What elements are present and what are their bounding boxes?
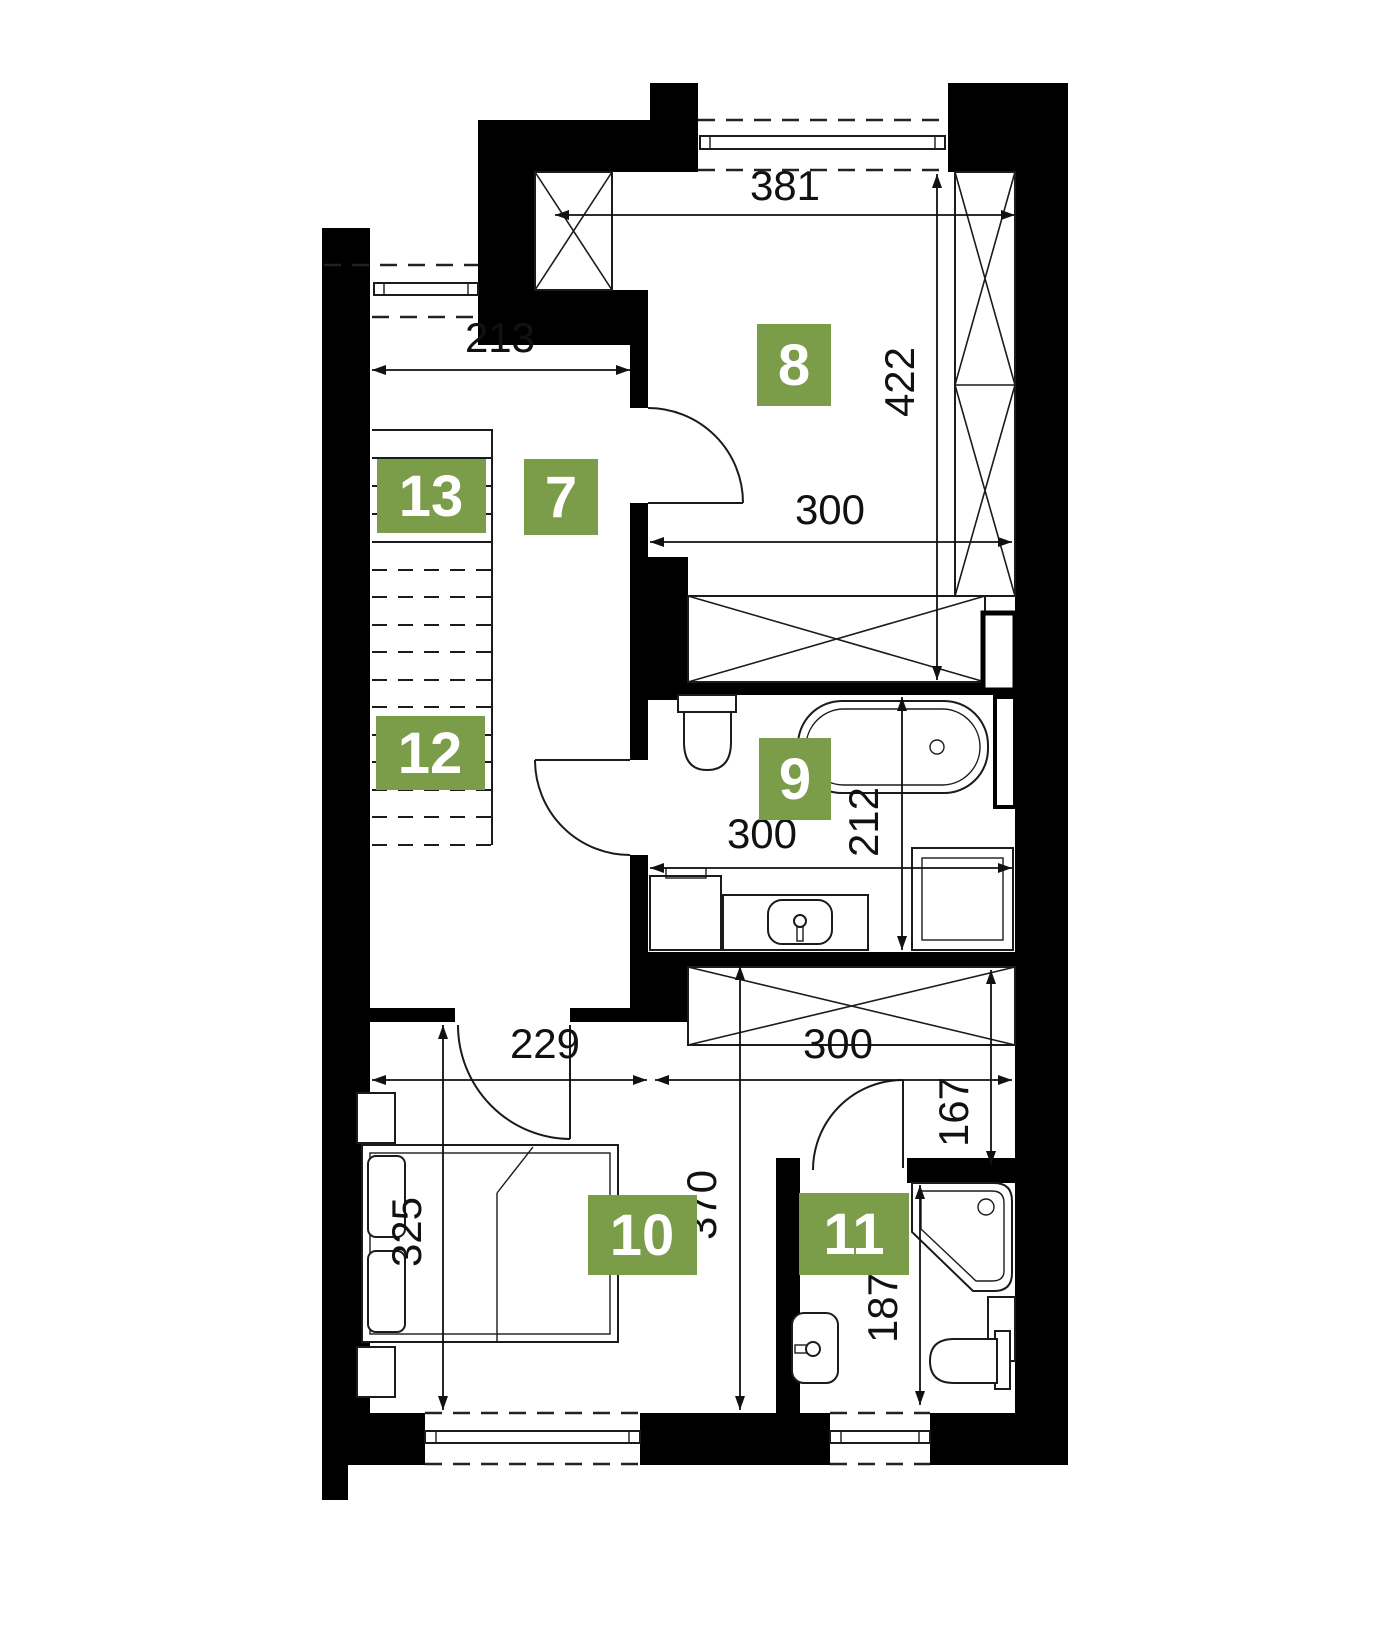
dim-label-212: 212 xyxy=(840,787,887,857)
closet-room8-bottom xyxy=(688,596,985,682)
dim-label-213: 213 xyxy=(465,314,535,361)
room-badge-11: 11 xyxy=(799,1193,909,1275)
sink-tap xyxy=(806,1342,820,1356)
wall-left-stub xyxy=(322,1465,348,1500)
toilet-bowl xyxy=(930,1339,997,1383)
washing-machine-outer xyxy=(912,848,1013,950)
wardrobe-box xyxy=(955,172,1015,596)
toilet-bath9 xyxy=(678,695,736,770)
room-badge-10: 10 xyxy=(588,1195,697,1275)
window-bedroom xyxy=(425,1413,640,1464)
dim-label-300-closet: 300 xyxy=(803,1020,873,1067)
window-bedroom-frame xyxy=(425,1431,640,1443)
dim-label-381: 381 xyxy=(750,162,820,209)
wall-bath9-left-upper xyxy=(630,700,648,760)
toilet-bath11 xyxy=(930,1331,1010,1389)
badge-number: 13 xyxy=(399,464,464,529)
room-badge-8: 8 xyxy=(757,324,831,406)
window-top-frame xyxy=(700,136,945,149)
wall-bath9-left-lower xyxy=(630,855,648,952)
badge-number: 10 xyxy=(610,1203,675,1268)
dim-label-167: 167 xyxy=(930,1077,977,1147)
badge-number: 7 xyxy=(545,465,577,530)
stairs-treads-dashed xyxy=(372,570,492,845)
shaft-lower xyxy=(995,697,1015,807)
wall-room10-top-left xyxy=(370,1008,455,1022)
shower-tray-outer xyxy=(912,1183,1012,1291)
shower xyxy=(912,1183,1012,1291)
badge-number: 8 xyxy=(778,333,810,398)
wall-top-stub xyxy=(650,83,698,172)
wall-bath11-top xyxy=(907,1158,1015,1183)
door-bath11 xyxy=(813,1080,903,1170)
wall-hall-wide xyxy=(630,557,688,700)
dim-label-422: 422 xyxy=(876,347,923,417)
door-bath11-swing xyxy=(813,1080,903,1170)
floor-plan-page: 381 422 213 300 300 212 229 300 167 370 … xyxy=(0,0,1400,1646)
wall-hall-room8-lower xyxy=(630,503,648,557)
wall-top-band xyxy=(478,120,650,172)
dim-label-325: 325 xyxy=(383,1197,430,1267)
dim-label-229: 229 xyxy=(510,1020,580,1067)
door-room8-swing xyxy=(648,408,743,503)
wall-bottom-left xyxy=(322,1413,425,1465)
floor-plan-drawing: 381 422 213 300 300 212 229 300 167 370 … xyxy=(0,0,1400,1646)
dim-label-300-room8: 300 xyxy=(795,486,865,533)
dim-label-187: 187 xyxy=(859,1273,906,1343)
door-bath9-swing xyxy=(535,760,630,855)
wall-top-right-block xyxy=(948,83,1068,172)
badge-number: 9 xyxy=(779,747,811,812)
cabinet xyxy=(650,876,721,950)
window-stairs-frame xyxy=(374,283,478,295)
door-bath9 xyxy=(535,760,630,855)
nightstand-top xyxy=(357,1093,395,1143)
wall-corridor-stub xyxy=(630,967,688,1022)
shaft-upper xyxy=(983,613,1015,690)
wardrobe-room8-right xyxy=(955,172,1015,596)
nightstand-bottom xyxy=(357,1347,395,1397)
wall-bath9-bottom xyxy=(630,952,1015,967)
sink-tap xyxy=(794,915,806,927)
window-top xyxy=(698,120,945,170)
badge-number: 11 xyxy=(823,1202,884,1267)
room-badge-9: 9 xyxy=(759,738,831,820)
toilet-tank xyxy=(678,695,736,712)
window-bath11 xyxy=(830,1413,930,1464)
room-badges: 13 7 8 9 12 10 11 xyxy=(376,324,909,1275)
room-badge-12: 12 xyxy=(376,716,485,790)
vanity-bath9 xyxy=(650,868,868,950)
wall-hall-step xyxy=(535,290,648,345)
sink-bath11 xyxy=(792,1313,838,1383)
washing-machine xyxy=(912,848,1013,950)
room-badge-7: 7 xyxy=(524,459,598,535)
wall-hall-room8-upper xyxy=(630,345,648,408)
wardrobe-room8-topleft xyxy=(535,172,612,290)
wall-bottom-middle xyxy=(640,1413,830,1465)
room-badge-13: 13 xyxy=(377,459,486,533)
badge-number: 12 xyxy=(398,721,463,786)
wall-bottom-right xyxy=(930,1413,1068,1465)
toilet-bowl xyxy=(684,712,731,770)
wall-right xyxy=(1015,172,1068,1465)
door-room8 xyxy=(648,408,743,503)
wall-bath9-top xyxy=(630,682,1015,695)
window-bath11-frame xyxy=(830,1431,930,1443)
